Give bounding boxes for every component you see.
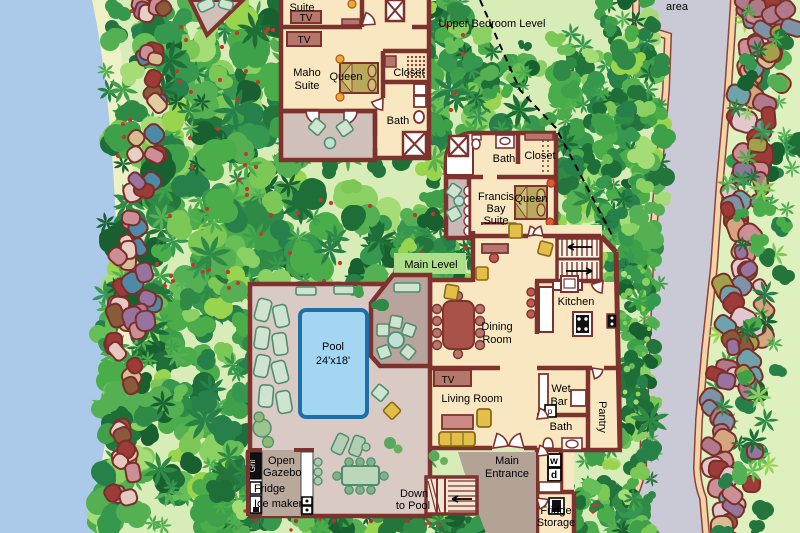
- svg-text:Maho: Maho: [293, 67, 321, 79]
- svg-text:Pool: Pool: [322, 341, 344, 353]
- svg-text:Upper Bedroom Level: Upper Bedroom Level: [438, 18, 545, 30]
- svg-text:w: w: [549, 456, 558, 467]
- svg-text:Bath: Bath: [387, 115, 410, 127]
- svg-text:Main Level: Main Level: [404, 259, 457, 271]
- svg-text:24'x18': 24'x18': [316, 355, 350, 367]
- svg-text:Entrance: Entrance: [485, 468, 529, 480]
- svg-text:Storage: Storage: [537, 517, 576, 529]
- svg-text:Pantry: Pantry: [596, 401, 608, 433]
- svg-text:Queen: Queen: [514, 193, 547, 205]
- svg-text:Bath: Bath: [550, 421, 573, 433]
- svg-text:Room: Room: [482, 334, 511, 346]
- svg-text:Bay: Bay: [487, 203, 506, 215]
- svg-text:d: d: [551, 470, 557, 481]
- svg-text:Living Room: Living Room: [441, 393, 502, 405]
- svg-text:Wet: Wet: [551, 383, 570, 395]
- svg-text:to Pool: to Pool: [396, 500, 430, 512]
- svg-text:Closet: Closet: [393, 67, 424, 79]
- svg-text:Down: Down: [400, 488, 428, 500]
- svg-text:TV: TV: [442, 375, 455, 386]
- svg-text:Dining: Dining: [481, 321, 512, 333]
- svg-text:Bar: Bar: [550, 396, 567, 408]
- svg-text:Fridge: Fridge: [254, 483, 285, 495]
- svg-text:Queen: Queen: [329, 71, 362, 83]
- svg-text:Ice maker: Ice maker: [254, 498, 303, 510]
- svg-text:TV: TV: [298, 35, 311, 46]
- svg-text:area: area: [666, 1, 689, 13]
- svg-text:Closet: Closet: [524, 150, 555, 162]
- svg-text:Kitchen: Kitchen: [558, 296, 595, 308]
- svg-text:Gazebo: Gazebo: [263, 467, 302, 479]
- svg-text:Bath: Bath: [493, 153, 516, 165]
- svg-text:Francis: Francis: [478, 191, 515, 203]
- svg-text:TV: TV: [300, 13, 313, 24]
- svg-text:p: p: [548, 407, 553, 416]
- svg-text:Main: Main: [495, 455, 519, 467]
- svg-text:Open: Open: [268, 455, 295, 467]
- svg-text:Suite: Suite: [294, 80, 319, 92]
